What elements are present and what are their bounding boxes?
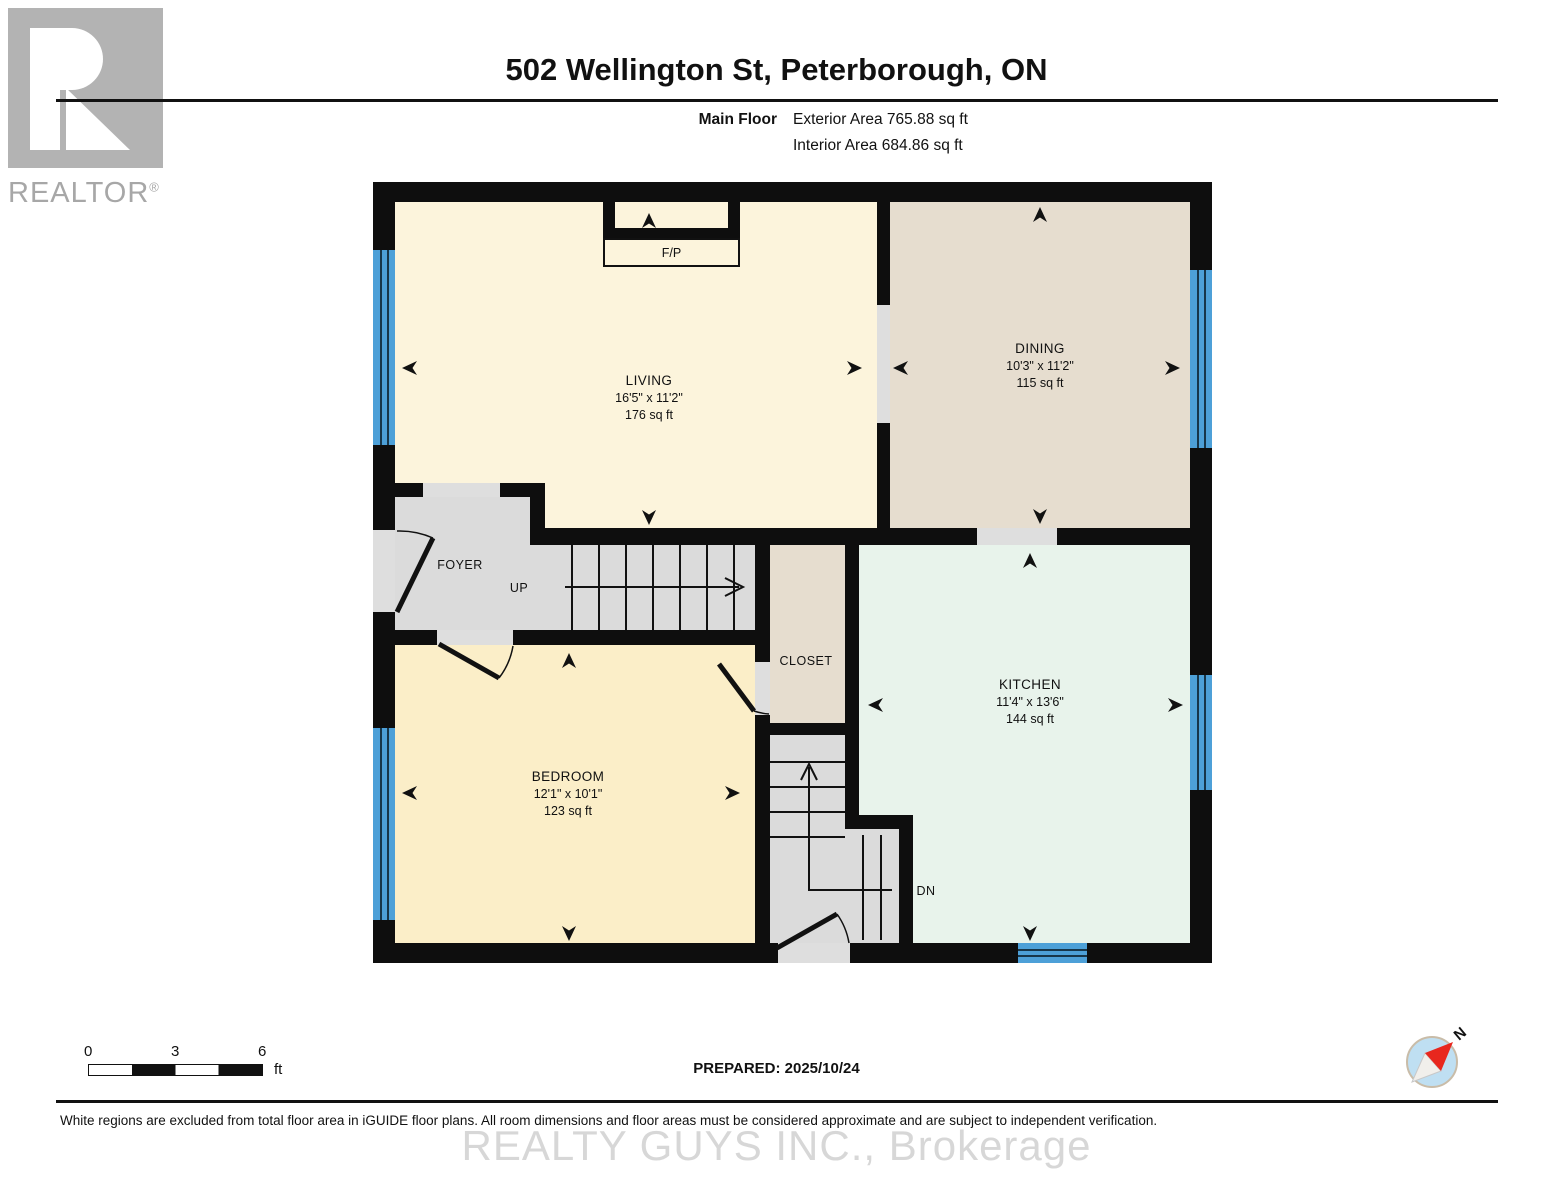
room-label-dining: DINING 10'3" x 11'2" 115 sq ft: [1006, 340, 1074, 392]
interior-area: Interior Area 684.86 sq ft: [793, 137, 963, 155]
floor-plan: F/P LIVING 16'5" x 11'2" 176 sq ft DININ…: [373, 182, 1212, 963]
closet-door-opening: [755, 662, 770, 715]
realtor-wordmark: REALTOR®: [8, 177, 178, 210]
compass-icon: N: [1400, 1026, 1474, 1092]
stairs-up-area: [545, 545, 755, 630]
scale-tick: 3: [171, 1043, 179, 1060]
wall: [530, 528, 1190, 545]
room-label-kitchen: KITCHEN 11'4" x 13'6" 144 sq ft: [996, 676, 1064, 728]
header-divider: [56, 99, 1498, 102]
wall: [530, 483, 545, 545]
room-label-bedroom: BEDROOM 12'1" x 10'1" 123 sq ft: [532, 768, 605, 820]
stairs-up-label: UP: [510, 581, 528, 595]
wall: [845, 545, 859, 815]
realtor-logo: REALTOR®: [8, 8, 178, 210]
wall: [899, 829, 913, 943]
prepared-date: PREPARED: 2025/10/24: [0, 1060, 1553, 1077]
floor-label: Main Floor: [560, 111, 777, 129]
window-kitchen-right: [1190, 675, 1212, 790]
stairs-down-label: DN: [916, 884, 935, 898]
scale-tick: 6: [258, 1043, 266, 1060]
fireplace-label: F/P: [662, 246, 681, 260]
front-door-opening: [373, 530, 395, 612]
realtor-r-icon: [8, 8, 163, 168]
basement-door-opening: [778, 943, 850, 963]
scale-tick: 0: [84, 1043, 92, 1060]
wall: [845, 815, 913, 829]
page-title: 502 Wellington St, Peterborough, ON: [0, 52, 1553, 88]
stairs-down-corridor: [770, 735, 845, 943]
stairs-down-landing: [845, 829, 899, 943]
disclaimer-text: White regions are excluded from total fl…: [60, 1113, 1157, 1128]
fireplace: F/P: [603, 238, 740, 267]
window-dining-right: [1190, 270, 1212, 448]
fireplace-niche: [603, 182, 740, 238]
window-kitchen-bottom: [1018, 943, 1087, 963]
window-bedroom-left: [373, 728, 395, 920]
exterior-area: Exterior Area 765.88 sq ft: [793, 111, 968, 129]
doorway-dining-kitchen: [977, 528, 1057, 545]
doorway-living-foyer: [423, 483, 500, 497]
wall: [373, 182, 1212, 202]
doorway-living-dining: [877, 305, 890, 423]
compass-north-label: N: [1451, 1026, 1470, 1044]
floor-plan-page: REALTOR® 502 Wellington St, Peterborough…: [0, 0, 1553, 1200]
room-closet: [770, 545, 845, 723]
watermark: REALTY GUYS INC., Brokerage: [0, 1122, 1553, 1170]
room-label-closet: CLOSET: [779, 654, 832, 668]
doorway-foyer-bedroom: [437, 630, 513, 645]
fireplace-niche-inner: [615, 202, 728, 228]
wall: [755, 545, 770, 943]
room-label-living: LIVING 16'5" x 11'2" 176 sq ft: [615, 372, 683, 424]
window-living-left: [373, 250, 395, 445]
room-label-foyer: FOYER: [437, 558, 483, 572]
wall: [770, 723, 845, 735]
footer-divider: [56, 1100, 1498, 1103]
